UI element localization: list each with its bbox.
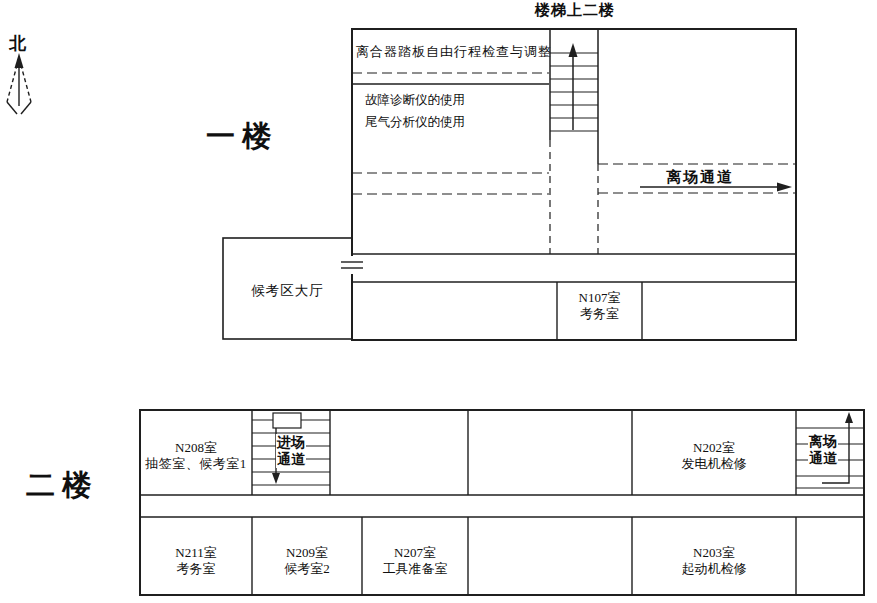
room-n208-label: N208室 抽签室、候考室1 [140, 440, 252, 472]
room-n203-label: N203室 起动机检修 [632, 545, 796, 577]
wall-break-icon [341, 256, 363, 274]
stairs-up-arrow-icon [569, 43, 578, 130]
floor2-exit-corridor-label: 离场 通道 [800, 433, 846, 467]
north-label: 北 [9, 32, 26, 55]
room-n211-label: N211室 考务室 [140, 545, 252, 577]
floor1-stairs-top-label: 楼梯上二楼 [519, 1, 631, 20]
floor2-entry-corridor-label: 进场 通道 [263, 434, 319, 468]
room-n202-label: N202室 发电机检修 [632, 440, 796, 472]
diag-room-line1: 故障诊断仪的使用 [365, 92, 465, 109]
waiting-hall-label: 候考区大厅 [223, 282, 352, 300]
clutch-room-label: 离合器踏板自由行程检查与调整 [356, 43, 552, 61]
floor1-title: 一楼 [206, 117, 278, 157]
room-n207-label: N207室 工具准备室 [362, 545, 468, 577]
floor1-exit-corridor-label: 离场通道 [640, 168, 760, 187]
floor1-staircase-icon [550, 53, 598, 131]
room-n107-label: N107室 考务室 [557, 290, 642, 322]
floor-plan-lines [0, 0, 877, 603]
room-n209-label: N209室 候考室2 [252, 545, 362, 577]
diag-room-line2: 尾气分析仪的使用 [365, 114, 465, 131]
floor-plan-canvas: 北 一楼 楼梯上二楼 离合器踏板自由行程检查与调整 故障诊断仪的使用 尾气分析仪… [0, 0, 877, 603]
north-arrow-icon [7, 53, 31, 114]
floor2-title: 二楼 [26, 466, 98, 506]
